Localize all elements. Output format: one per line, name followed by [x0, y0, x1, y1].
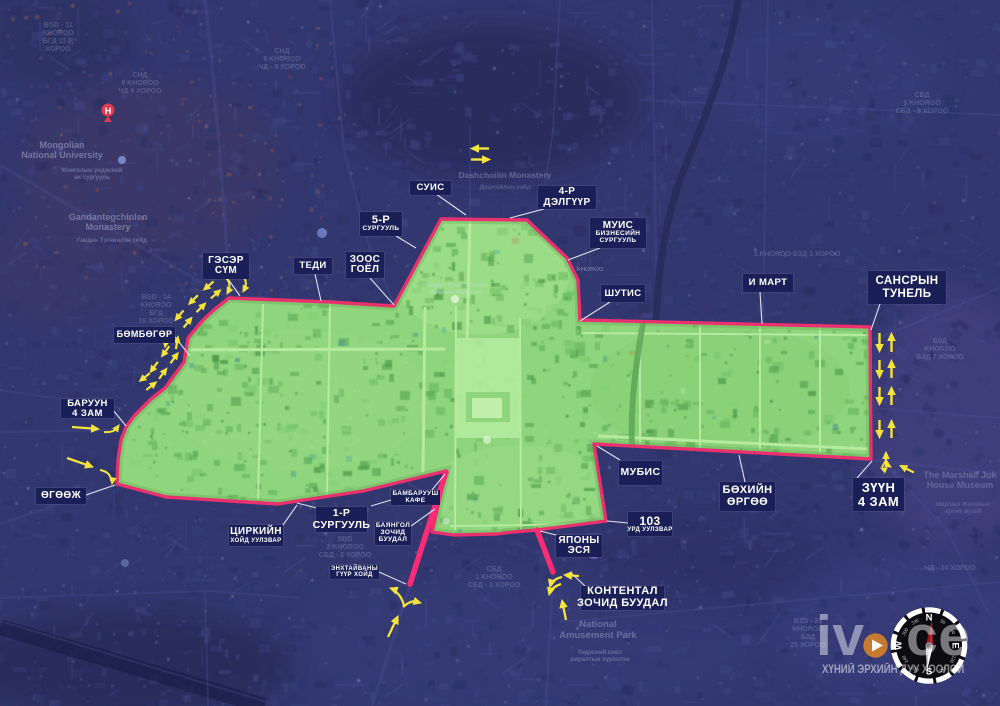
svg-text:W: W — [894, 641, 905, 650]
svg-text:H: H — [105, 106, 112, 116]
